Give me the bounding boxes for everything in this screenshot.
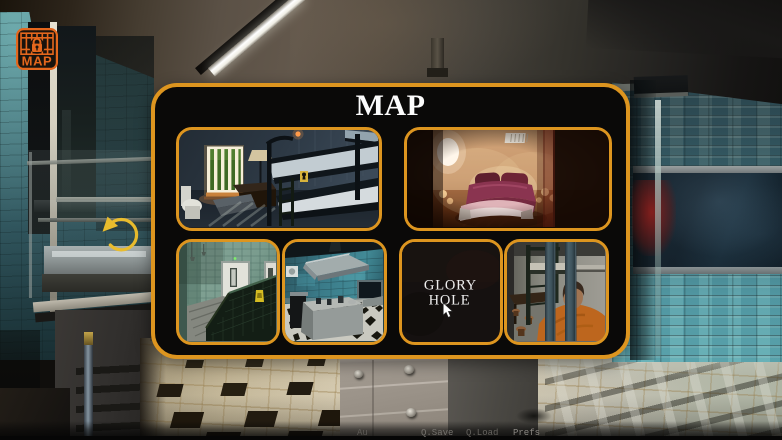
svg-text:HOLE: HOLE	[429, 293, 471, 309]
svg-text:GLORY: GLORY	[424, 278, 477, 294]
svg-text:MAP: MAP	[22, 54, 53, 69]
